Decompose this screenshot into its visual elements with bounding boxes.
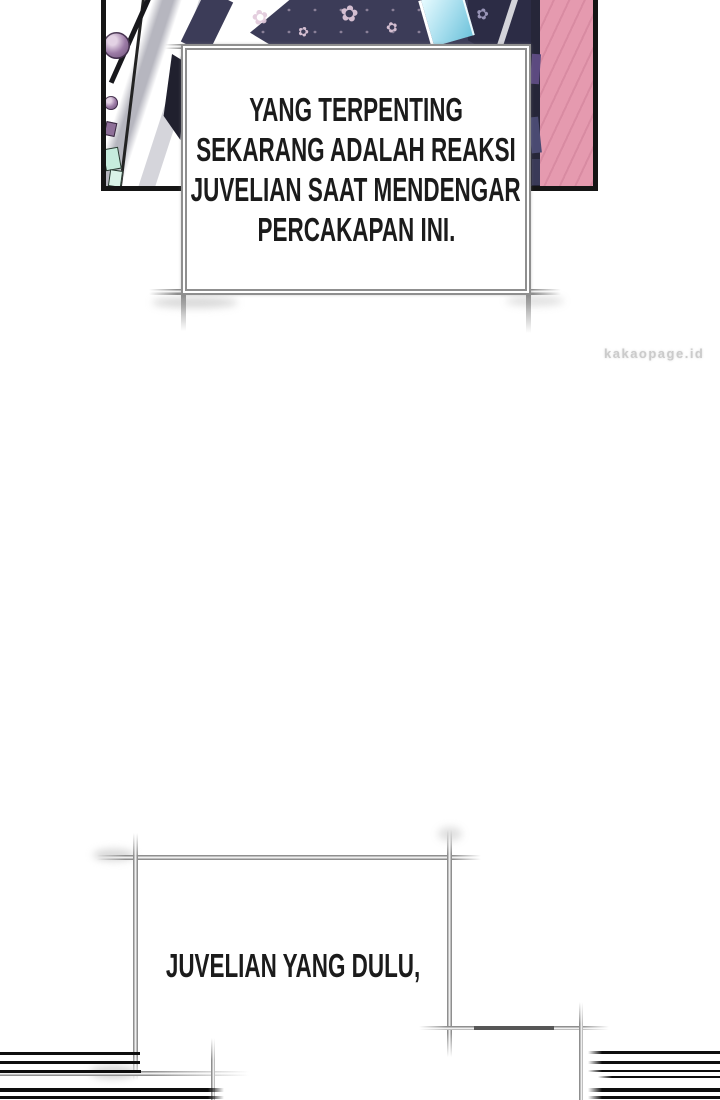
narration-text-line: SEKARANG ADALAH REAKSI [196, 130, 516, 170]
narration-text-line: YANG TERPENTING [249, 90, 463, 130]
box-border-line-dark [474, 1026, 554, 1030]
speed-line [0, 1052, 140, 1055]
narration-text-line: JUVELIAN SAAT MENDENGAR [191, 170, 521, 210]
box-border-line [526, 295, 531, 333]
speed-line [0, 1096, 224, 1099]
purple-bead [103, 32, 130, 59]
speed-line [0, 1070, 141, 1073]
box-border-line [579, 1002, 583, 1100]
box-border-line [97, 855, 481, 860]
speed-line [588, 1070, 720, 1072]
pink-edge-fragment [532, 159, 540, 185]
speed-line [598, 1076, 720, 1078]
speed-line [588, 1096, 720, 1099]
watermark: kakaopage.id [604, 346, 704, 361]
shadow-smear [152, 297, 238, 308]
speed-line [588, 1088, 720, 1092]
purple-bead-small [104, 96, 118, 110]
box-border-line [181, 295, 186, 331]
narration-box-1: YANG TERPENTING SEKARANG ADALAH REAKSI J… [181, 44, 531, 295]
comic-page: ✿ ✿ ✿ ✿ ✿ YANG TERPENTING SEKARANG ADALA… [0, 0, 720, 1100]
speed-line [0, 1061, 140, 1064]
flower-icon: ✿ [339, 2, 360, 26]
speed-line [588, 1061, 720, 1064]
speed-line [0, 1088, 224, 1092]
box-border-line [447, 830, 452, 1057]
narration-text-line: PERCAKAPAN INI. [257, 210, 455, 250]
teal-fragment [108, 169, 123, 188]
speed-line [588, 1051, 720, 1054]
narration-box-2: JUVELIAN YANG DULU, [137, 859, 450, 1072]
narration-text-line: JUVELIAN YANG DULU, [166, 946, 420, 986]
pink-wall [540, 0, 593, 186]
shadow-smear [506, 296, 564, 306]
flower-icon: ✿ [250, 6, 271, 29]
box-border-line [133, 833, 138, 1080]
